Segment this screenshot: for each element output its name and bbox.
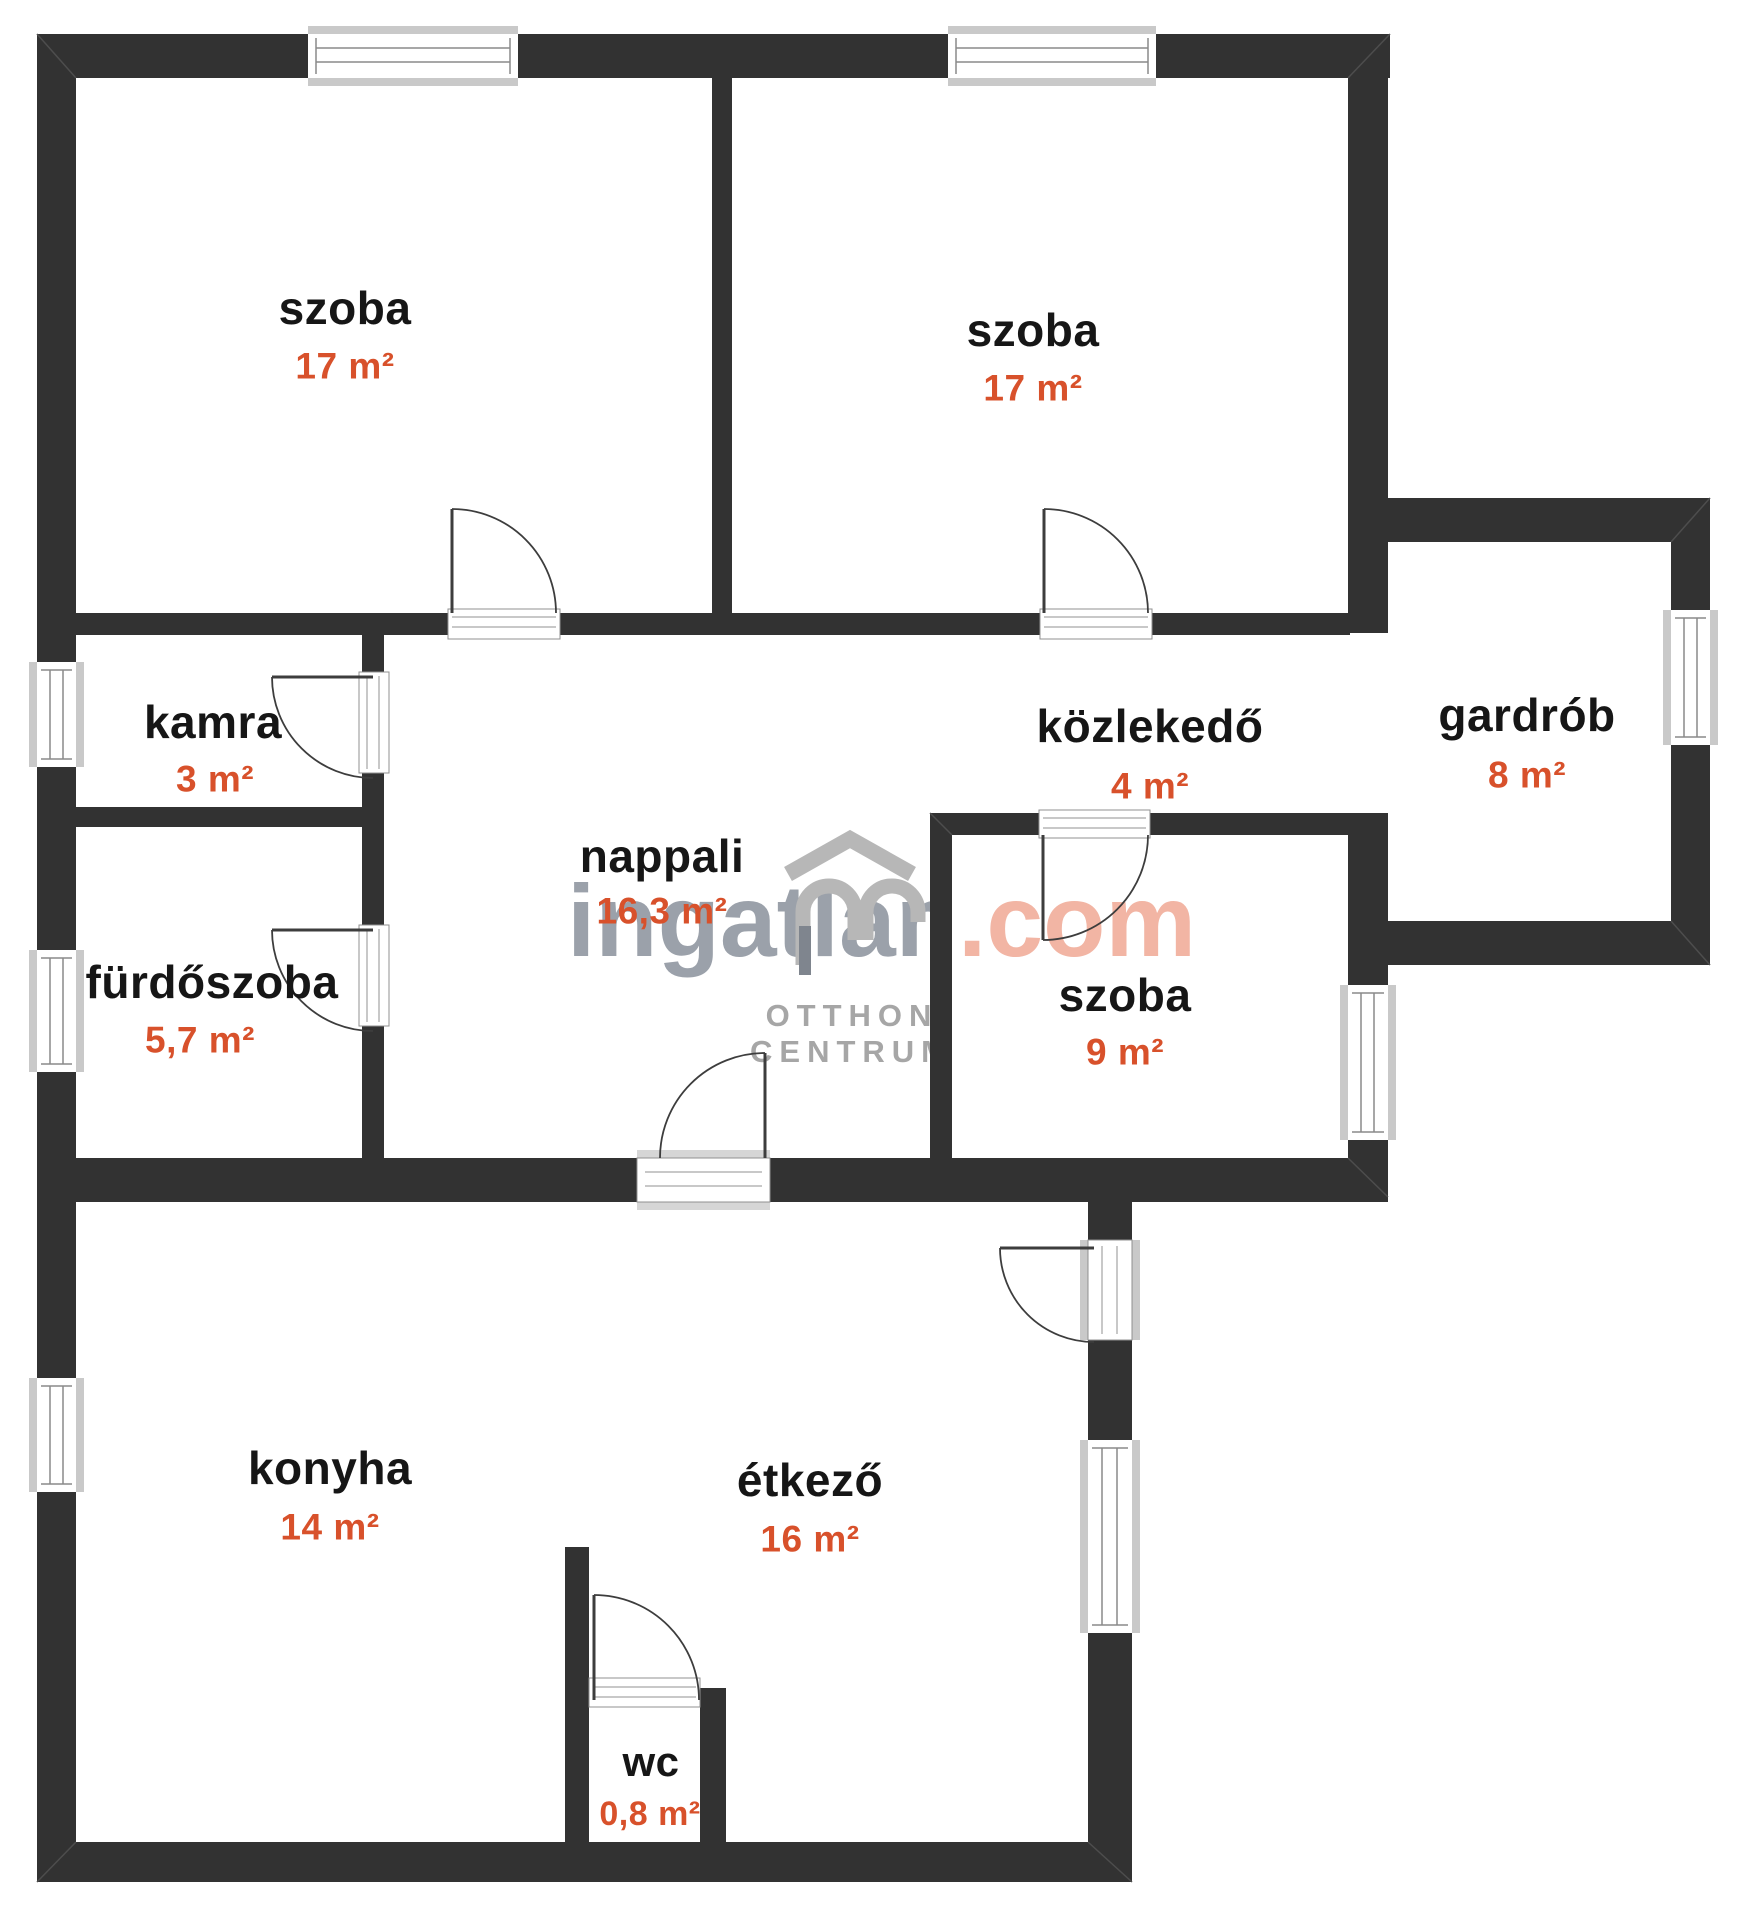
room-area-kamra: 3 m²	[176, 761, 254, 798]
window-icon	[308, 26, 518, 86]
wall	[1348, 921, 1710, 965]
door-icon	[1040, 509, 1152, 639]
windows-layer	[29, 26, 1718, 1633]
room-name-kamra: kamra	[144, 699, 282, 745]
room-name-szoba-1: szoba	[279, 285, 412, 331]
room-area-szoba-1: 17 m²	[295, 348, 394, 385]
floorplan-canvas: ingatlan .com OTTHON CENTRUM	[0, 0, 1740, 1920]
wall	[37, 1842, 1132, 1882]
room-name-wc: wc	[622, 1741, 679, 1783]
room-name-kozlekedo: közlekedő	[1037, 703, 1264, 749]
wall	[37, 34, 1390, 78]
door-icon	[589, 1595, 700, 1707]
door-icon	[448, 509, 560, 639]
door-icon	[1000, 1240, 1140, 1342]
window-icon	[1663, 610, 1718, 745]
room-area-nappali: 16,3 m²	[596, 893, 727, 930]
room-area-wc: 0,8 m²	[599, 1797, 700, 1831]
wall	[930, 813, 1388, 835]
window-icon	[948, 26, 1156, 86]
room-area-kozlekedo: 4 m²	[1111, 768, 1189, 805]
window-icon	[1080, 1440, 1140, 1633]
watermark-agency-line1: OTTHON	[766, 998, 939, 1033]
room-area-etkezo: 16 m²	[760, 1521, 859, 1558]
window-icon	[29, 662, 84, 767]
wall	[76, 807, 384, 827]
room-area-gardrob: 8 m²	[1488, 757, 1566, 794]
window-icon	[1340, 985, 1396, 1140]
room-area-szoba-2: 17 m²	[983, 370, 1082, 407]
room-name-szoba-2: szoba	[967, 307, 1100, 353]
room-name-konyha: konyha	[248, 1445, 412, 1491]
window-icon	[29, 1378, 84, 1492]
doors-layer	[272, 509, 1152, 1707]
wall	[1348, 34, 1388, 633]
room-area-szoba-9: 9 m²	[1086, 1034, 1164, 1071]
door-icon	[637, 1053, 770, 1210]
door-icon	[272, 672, 389, 778]
window-icon	[29, 950, 84, 1072]
wall	[712, 78, 732, 613]
wall	[76, 613, 1350, 635]
room-area-konyha: 14 m²	[280, 1509, 379, 1546]
room-name-gardrob: gardrób	[1438, 692, 1615, 738]
wall	[1388, 498, 1710, 542]
room-name-szoba-9: szoba	[1059, 972, 1192, 1018]
wall	[930, 835, 952, 1158]
room-name-etkezo: étkező	[737, 1457, 883, 1503]
room-name-furdoszoba: fürdőszoba	[86, 959, 339, 1005]
room-area-furdoszoba: 5,7 m²	[145, 1022, 255, 1059]
watermark-agency-line2: CENTRUM	[750, 1034, 954, 1069]
wall	[700, 1688, 726, 1842]
room-name-nappali: nappali	[580, 833, 745, 879]
watermark-brand-tld: .com	[958, 864, 1196, 978]
wall	[565, 1547, 589, 1842]
